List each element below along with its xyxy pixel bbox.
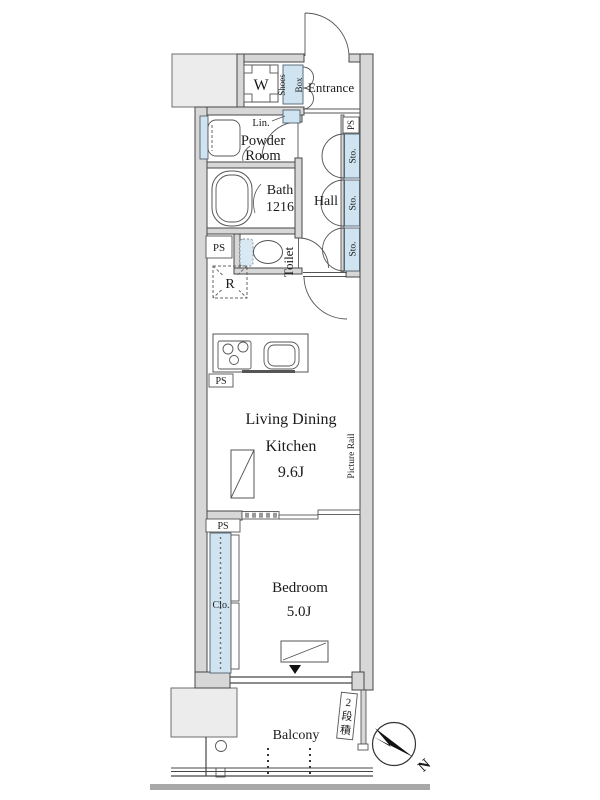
ldk-door-hinge-stub — [346, 271, 360, 277]
shoes-box-label-1: Shoes — [277, 74, 287, 96]
pipe-space-label-kitchen: PS — [215, 376, 226, 387]
hall-label: Hall — [314, 194, 338, 209]
picture-rail-label: Picture Rail — [347, 433, 357, 478]
linen-label: Lin. — [252, 118, 269, 129]
ldk-shelf — [231, 450, 254, 498]
closet-door-panel-2 — [231, 603, 239, 669]
burner-3 — [230, 356, 239, 365]
bath-leader-line-1 — [253, 184, 261, 213]
entrance-door-swing — [305, 13, 349, 57]
closet-label: Clo. — [213, 600, 230, 611]
bath-size-label: 1216 — [266, 200, 294, 215]
east-exterior-wall — [360, 54, 373, 690]
bedroom-size-label: 5.0J — [287, 604, 312, 620]
bedroom-sliding-doors — [242, 510, 360, 519]
hall-west-wall — [295, 158, 302, 238]
kitchen-counter — [213, 334, 308, 373]
burner-1 — [223, 344, 233, 354]
top-wall-left — [237, 54, 304, 62]
balcony-drain — [216, 741, 227, 752]
refrigerator-label: R — [225, 277, 235, 292]
floor-plan-canvas: W Shoes Box Entrance Lin. Powder Room PS… — [0, 0, 600, 800]
floor-plan-drawing: W Shoes Box Entrance Lin. Powder Room PS… — [0, 0, 600, 800]
bedroom-south-wall-right — [352, 672, 364, 690]
compass-north-label: N — [415, 756, 434, 775]
powder-room-label-2: Room — [245, 148, 281, 164]
ldk-label-2: Kitchen — [266, 438, 317, 455]
burner-2 — [238, 342, 248, 352]
toilet-label: Toilet — [281, 247, 296, 278]
ldk-door-swing — [304, 276, 347, 319]
shoes-box-label-2: Box — [294, 77, 304, 93]
ac-note-char-3: 積 — [339, 722, 351, 737]
bathtub — [212, 171, 252, 226]
storage-label-3: Sto. — [349, 241, 359, 256]
adjacent-balcony-block — [171, 688, 237, 737]
bedroom-south-wall-left — [195, 672, 230, 688]
bedroom-label: Bedroom — [272, 580, 328, 596]
west-exterior-wall — [195, 107, 207, 688]
ldk-size-label: 9.6J — [278, 464, 304, 481]
balcony-access-marker — [289, 665, 301, 674]
ldk-label-1: Living Dining — [245, 411, 336, 428]
washer-label: W — [253, 77, 269, 94]
toilet-fixture — [240, 239, 283, 266]
storage-label-1: Sto. — [349, 148, 359, 163]
entrance-label: Entrance — [308, 80, 354, 95]
ac-note-char-2: 段 — [341, 708, 353, 723]
balcony-east-wall — [361, 690, 366, 744]
washer-room-west-wall — [237, 54, 244, 108]
bath-toilet-divider — [207, 228, 302, 234]
hall-storage-wall — [341, 115, 344, 272]
bath-label: Bath — [267, 183, 293, 198]
site-boundary-band — [150, 784, 430, 790]
pipe-space-label-bedroom: PS — [217, 521, 228, 532]
compass — [373, 723, 416, 766]
bedroom-low-window — [281, 641, 328, 662]
closet-door-panel-1 — [231, 535, 239, 601]
linen-shelf — [283, 110, 300, 123]
common-corridor-block — [172, 54, 237, 107]
pipe-space-label-toilet: PS — [213, 242, 225, 254]
washbasin — [200, 116, 240, 159]
balcony-window — [230, 677, 352, 683]
balcony-wall-endcap — [358, 744, 368, 750]
balcony-label: Balcony — [273, 728, 320, 743]
powder-room-label-1: Powder — [241, 133, 285, 149]
storage-label-2: Sto. — [349, 195, 359, 210]
pipe-space-label-top: PS — [346, 120, 356, 130]
